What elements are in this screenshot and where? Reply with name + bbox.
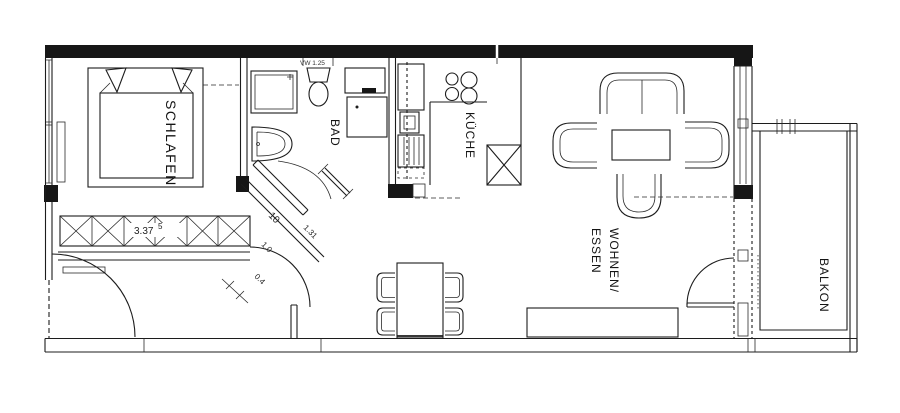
balcony-facade-windows: [734, 66, 752, 338]
bath-vent-dimension: VW 1.25: [300, 58, 333, 67]
sofa: [600, 73, 684, 114]
balcony: [752, 119, 857, 352]
interior-walls: [241, 58, 522, 197]
armchair-right: [685, 122, 729, 168]
balcony-door: [687, 258, 734, 307]
fridge: [398, 64, 424, 110]
dim-hall-b: 1.31: [302, 223, 320, 241]
washbasin: [252, 127, 292, 161]
dining-chairs: [377, 273, 463, 335]
label-living-line1: WOHNEN/: [607, 228, 621, 293]
coffee-table: [612, 130, 670, 160]
service-shaft: [487, 145, 521, 185]
dining-table: [397, 263, 443, 338]
floor-plan-canvas: 3.37 5 VW 1.25 10 1.3: [0, 0, 900, 413]
toilet: [307, 68, 330, 106]
label-bathroom: BAD: [328, 119, 342, 147]
label-balcony: BALKON: [817, 258, 831, 313]
radiator: [57, 122, 65, 182]
dim-hall-d: 0.4: [253, 272, 268, 287]
label-bedroom: SCHLAFEN: [163, 100, 179, 187]
dim-bath-vent: VW 1.25: [300, 60, 325, 67]
sink: [400, 112, 419, 133]
kitchen-counter: [430, 102, 487, 185]
dim-wardrobe-length: 3.37: [134, 226, 154, 237]
label-living-line2: ESSEN: [589, 228, 603, 274]
entrance-door-arc: [52, 254, 135, 337]
dishwasher: [398, 135, 424, 167]
shower: [251, 71, 297, 113]
armchair-bottom: [617, 174, 661, 218]
pillow-left: [106, 68, 126, 92]
label-kitchen: KÜCHE: [463, 112, 477, 159]
armchair-left: [553, 123, 597, 168]
pillow-right: [172, 68, 192, 92]
sideboard: [527, 308, 678, 337]
door-mullion: [738, 250, 748, 261]
dim-hall-c: 1.0: [260, 240, 275, 255]
bath-appliances: [345, 68, 387, 137]
exterior-wall-bottom: [45, 339, 857, 353]
dim-wardrobe-length-sup: 5: [158, 222, 163, 231]
wardrobe: 3.37 5: [58, 216, 250, 273]
window-mullion: [738, 303, 748, 336]
cooktop: [446, 72, 478, 104]
